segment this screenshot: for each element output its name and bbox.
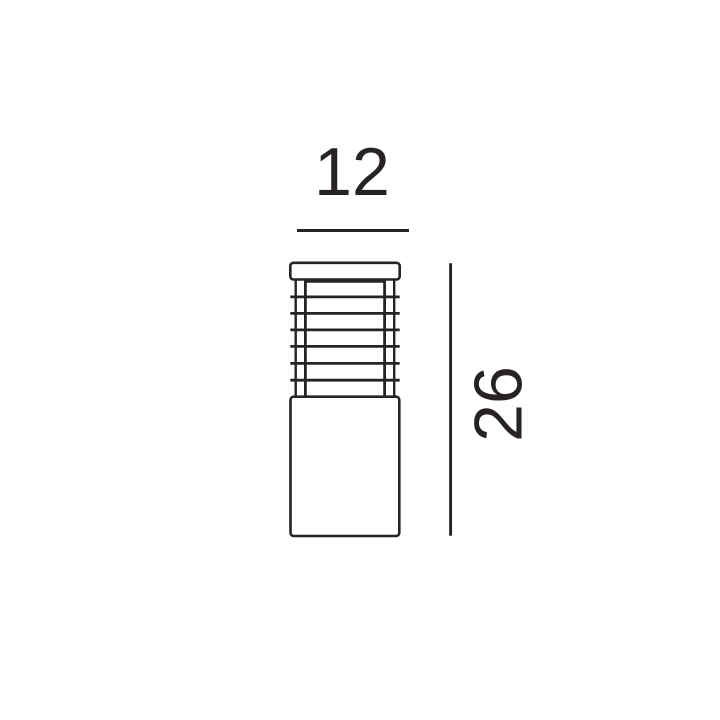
svg-text:12: 12 [314, 134, 390, 210]
svg-text:26: 26 [461, 366, 537, 442]
